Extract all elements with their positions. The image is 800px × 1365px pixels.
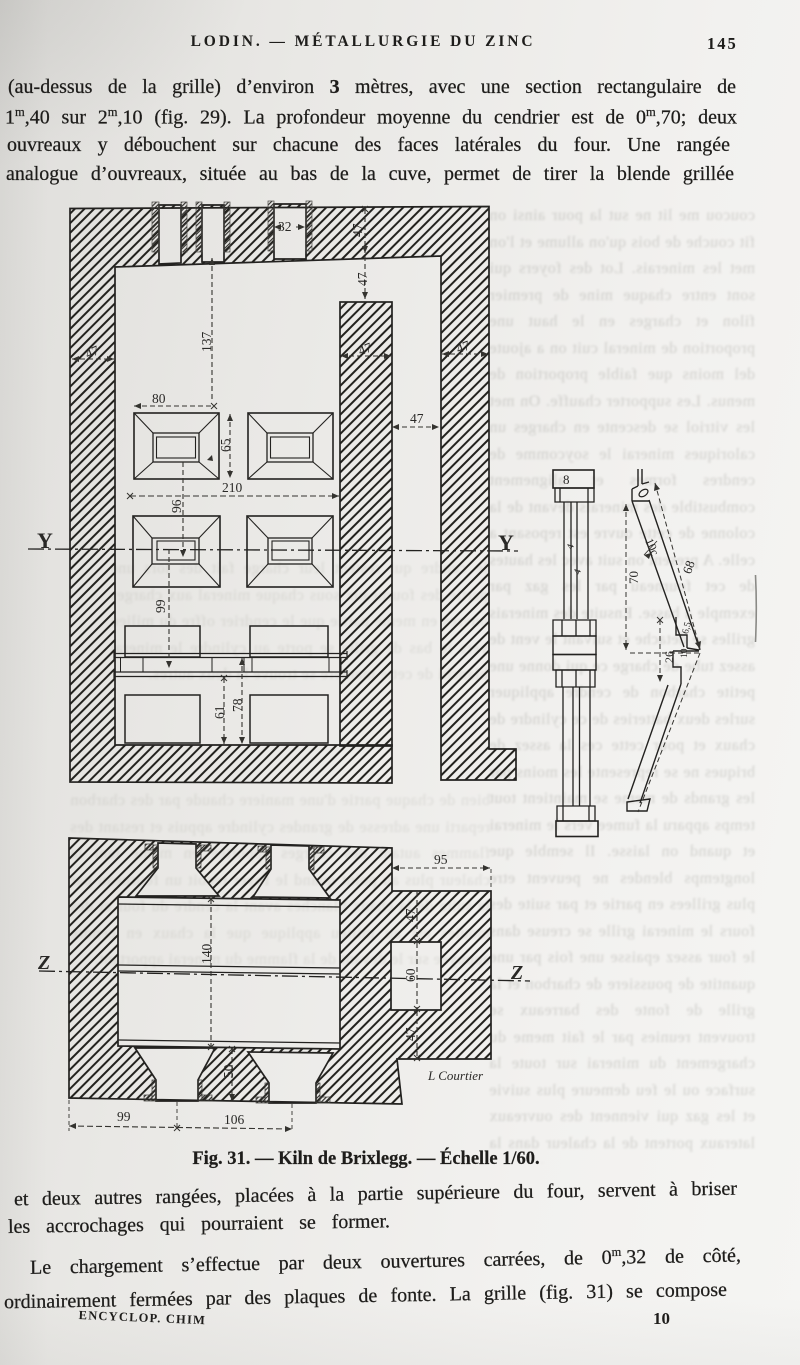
svg-text:47: 47 <box>403 908 418 922</box>
svg-text:106: 106 <box>224 1112 245 1127</box>
svg-text:Z: Z <box>37 952 50 974</box>
svg-text:61: 61 <box>212 706 227 720</box>
svg-text:210: 210 <box>222 480 243 495</box>
svg-text:68: 68 <box>679 558 698 575</box>
svg-text:47: 47 <box>403 1027 418 1041</box>
svg-text:26: 26 <box>662 651 676 663</box>
svg-text:Y: Y <box>37 528 53 553</box>
svg-text:8: 8 <box>563 472 570 487</box>
svg-text:50: 50 <box>221 1064 236 1078</box>
svg-text:78: 78 <box>230 698 245 712</box>
svg-text:99: 99 <box>117 1109 131 1124</box>
svg-text:L Courtier: L Courtier <box>427 1068 484 1083</box>
svg-text:4: 4 <box>572 568 584 576</box>
svg-text:10: 10 <box>680 648 690 658</box>
svg-text:32: 32 <box>278 219 292 234</box>
svg-text:47: 47 <box>410 411 424 426</box>
svg-text:47: 47 <box>355 272 370 286</box>
svg-text:99: 99 <box>153 599 168 613</box>
svg-text:60: 60 <box>403 968 418 982</box>
svg-text:140: 140 <box>199 944 214 965</box>
svg-text:6,5: 6,5 <box>681 621 694 635</box>
svg-text:137: 137 <box>199 332 214 353</box>
svg-text:80: 80 <box>152 391 166 406</box>
svg-text:Y: Y <box>498 530 514 555</box>
svg-text:96: 96 <box>169 499 184 513</box>
svg-text:47: 47 <box>350 223 365 237</box>
svg-text:65: 65 <box>218 438 233 452</box>
svg-text:70: 70 <box>626 571 641 584</box>
svg-text:Z: Z <box>510 962 523 984</box>
svg-text:95: 95 <box>434 852 448 867</box>
